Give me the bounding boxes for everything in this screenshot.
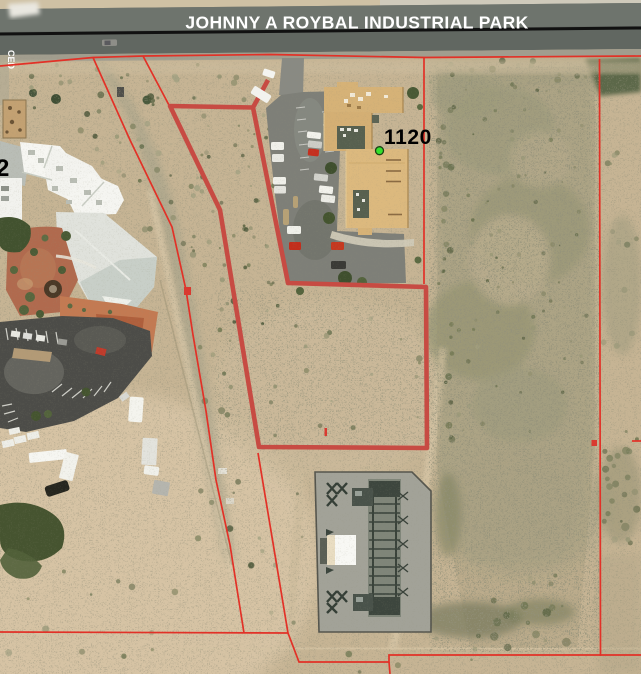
svg-text:JOHNNY A ROYBAL INDUSTRIAL PAR: JOHNNY A ROYBAL INDUSTRIAL PARK [185,13,528,33]
svg-text:1120: 1120 [384,126,432,149]
svg-text:2: 2 [0,155,9,182]
